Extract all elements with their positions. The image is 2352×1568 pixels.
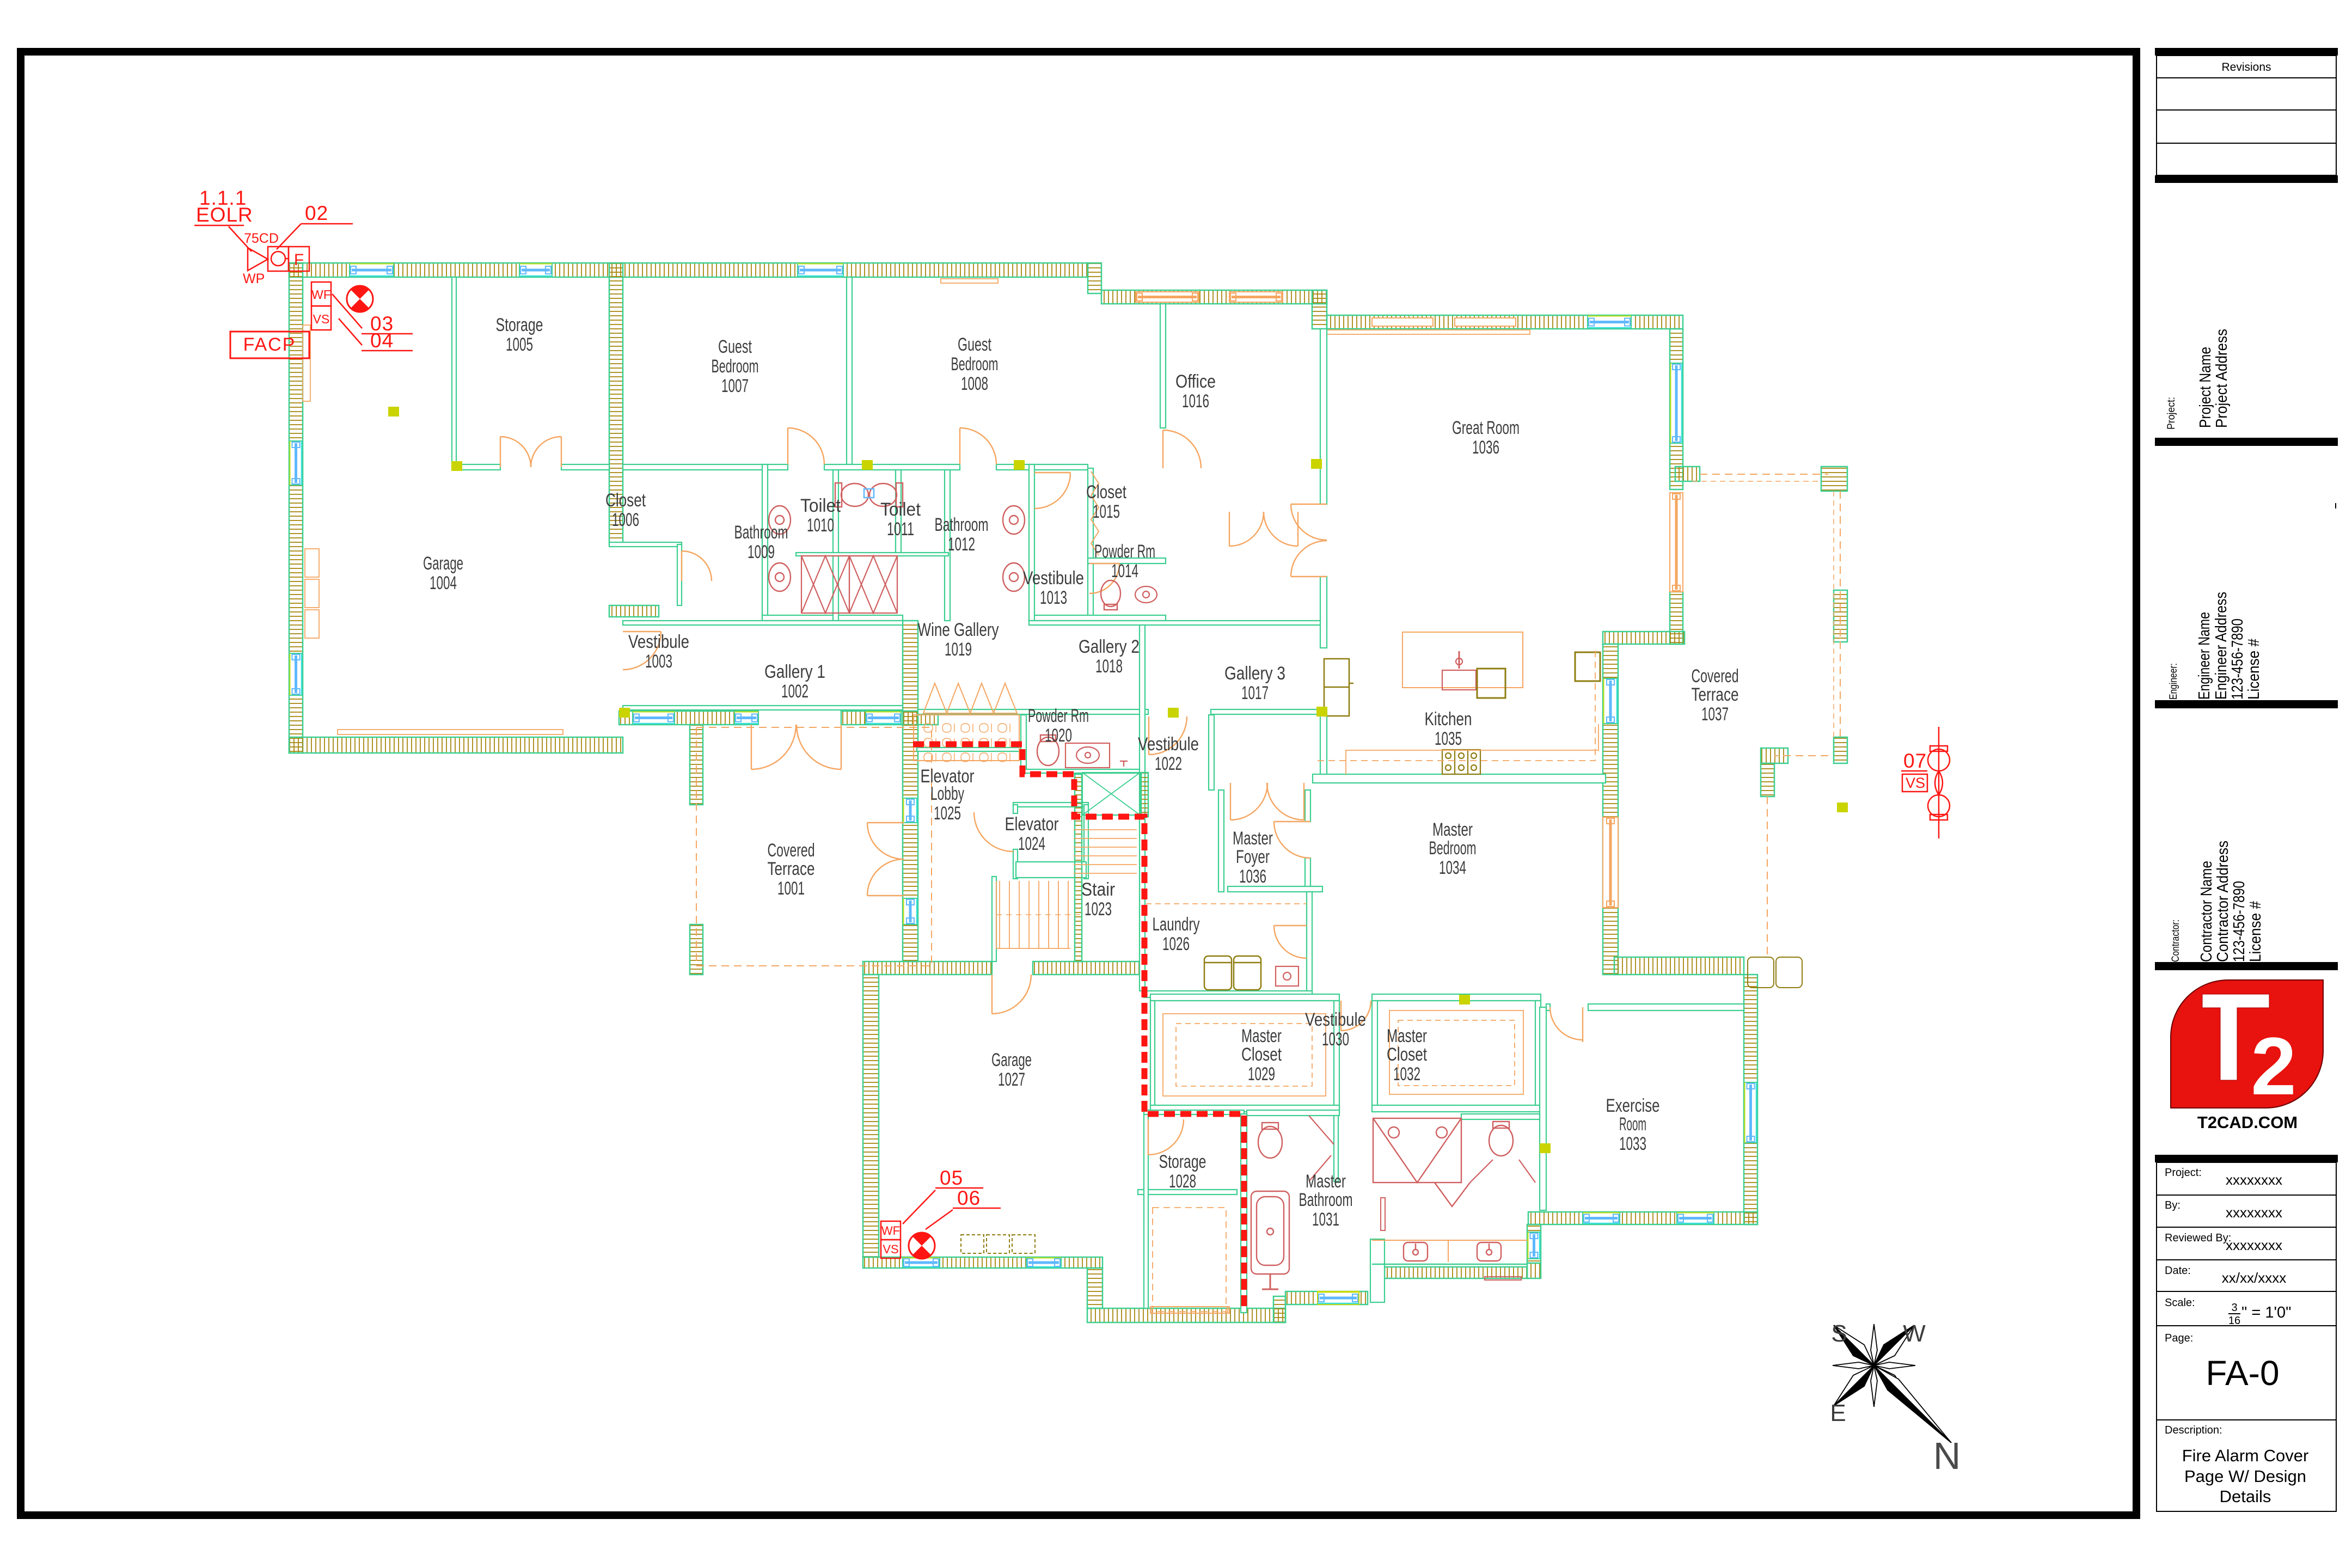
svg-text:1034: 1034 xyxy=(1439,857,1466,878)
svg-text:Stair: Stair xyxy=(1081,879,1115,900)
svg-text:xxxxxxxx: xxxxxxxx xyxy=(2226,1172,2282,1188)
svg-text:" = 1'0": " = 1'0" xyxy=(2241,1304,2291,1321)
svg-text:1019: 1019 xyxy=(945,639,972,660)
svg-text:Vestibule: Vestibule xyxy=(1305,1009,1366,1030)
svg-text:Vestibule: Vestibule xyxy=(1138,734,1199,755)
svg-text:Project:: Project: xyxy=(2165,1167,2202,1179)
svg-text:W: W xyxy=(1903,1320,1926,1347)
svg-text:1035: 1035 xyxy=(1435,728,1462,749)
svg-text:Engineer Address: Engineer Address xyxy=(2213,592,2230,700)
svg-text:1003: 1003 xyxy=(645,651,672,672)
svg-text:Exercise: Exercise xyxy=(1606,1095,1660,1116)
svg-text:Room: Room xyxy=(1619,1114,1646,1135)
svg-text:123-456-7890: 123-456-7890 xyxy=(2231,881,2248,962)
svg-text:75CD: 75CD xyxy=(244,231,279,246)
svg-text:06: 06 xyxy=(957,1187,981,1209)
svg-text:N: N xyxy=(1933,1435,1961,1477)
svg-text:EOLR: EOLR xyxy=(196,204,253,226)
svg-text:Vestibule: Vestibule xyxy=(628,632,689,652)
svg-text:Bathroom: Bathroom xyxy=(1299,1190,1353,1210)
svg-text:1025: 1025 xyxy=(934,803,961,824)
svg-text:Bedroom: Bedroom xyxy=(951,354,999,375)
svg-text:xxxxxxxx: xxxxxxxx xyxy=(2226,1204,2282,1221)
svg-text:Description:: Description: xyxy=(2165,1424,2222,1436)
svg-text:WF: WF xyxy=(311,287,331,302)
svg-text:Gallery 2: Gallery 2 xyxy=(1079,636,1140,657)
svg-text:FA-0: FA-0 xyxy=(2206,1353,2279,1393)
svg-text:By:: By: xyxy=(2165,1199,2180,1211)
svg-text:Storage: Storage xyxy=(496,315,543,335)
svg-text:Contractor Name: Contractor Name xyxy=(2198,861,2215,962)
svg-text:Closet: Closet xyxy=(605,490,646,511)
svg-text:Toilet: Toilet xyxy=(880,499,921,520)
svg-text:1011: 1011 xyxy=(887,519,914,540)
svg-text:E: E xyxy=(1830,1400,1846,1426)
svg-text:05: 05 xyxy=(940,1167,963,1189)
svg-text:Terrace: Terrace xyxy=(1692,684,1739,705)
svg-text:Fire Alarm Cover: Fire Alarm Cover xyxy=(2182,1446,2309,1465)
svg-text:123-456-7890: 123-456-7890 xyxy=(2229,618,2246,700)
svg-text:Project Name: Project Name xyxy=(2197,347,2214,428)
svg-text:1017: 1017 xyxy=(1241,683,1269,703)
svg-text:Terrace: Terrace xyxy=(768,859,815,879)
svg-text:1022: 1022 xyxy=(1155,754,1182,774)
svg-text:Reviewed By:: Reviewed By: xyxy=(2165,1232,2231,1244)
svg-text:xxxxxxxx: xxxxxxxx xyxy=(2226,1237,2282,1253)
svg-text:S: S xyxy=(1831,1320,1847,1347)
svg-text:Gallery 1: Gallery 1 xyxy=(764,661,825,682)
svg-text:Contractor Address: Contractor Address xyxy=(2214,841,2232,962)
svg-text:Master: Master xyxy=(1306,1171,1346,1192)
svg-text:1014: 1014 xyxy=(1111,561,1138,581)
svg-text:Master: Master xyxy=(1432,819,1473,840)
svg-text:Kitchen: Kitchen xyxy=(1425,709,1472,730)
svg-text:Bathroom: Bathroom xyxy=(935,514,989,535)
svg-text:1018: 1018 xyxy=(1095,656,1123,677)
svg-text:Bedroom: Bedroom xyxy=(1429,838,1477,859)
svg-text:3: 3 xyxy=(2231,1302,2237,1314)
svg-text:1005: 1005 xyxy=(506,334,533,355)
svg-text:1029: 1029 xyxy=(1248,1064,1275,1085)
svg-text:T2CAD.COM: T2CAD.COM xyxy=(2197,1113,2298,1132)
svg-text:1030: 1030 xyxy=(1322,1029,1349,1050)
svg-text:1007: 1007 xyxy=(721,376,749,396)
svg-text:Garage: Garage xyxy=(991,1050,1032,1070)
svg-text:FACP: FACP xyxy=(243,334,296,355)
svg-text:Contractor:: Contractor: xyxy=(2170,920,2182,962)
svg-text:Revisions: Revisions xyxy=(2221,61,2271,73)
svg-text:1026: 1026 xyxy=(1162,934,1190,954)
svg-text:1004: 1004 xyxy=(430,573,457,593)
svg-text:Details: Details xyxy=(2220,1487,2271,1506)
svg-text:Bedroom: Bedroom xyxy=(712,356,759,377)
svg-text:1037: 1037 xyxy=(1701,704,1729,725)
svg-text:Project:: Project: xyxy=(2166,397,2177,430)
svg-text:Engineer:: Engineer: xyxy=(2168,663,2179,700)
svg-text:Guest: Guest xyxy=(718,336,752,357)
svg-text:Scale:: Scale: xyxy=(2165,1297,2195,1309)
svg-text:1036: 1036 xyxy=(1239,866,1266,887)
svg-text:Project Address: Project Address xyxy=(2213,329,2231,428)
svg-text:1027: 1027 xyxy=(998,1069,1025,1090)
svg-text:Great Room: Great Room xyxy=(1452,418,1520,438)
svg-text:Master: Master xyxy=(1241,1026,1282,1046)
svg-text:1006: 1006 xyxy=(612,510,639,530)
svg-text:1002: 1002 xyxy=(781,681,808,702)
svg-text:Toilet: Toilet xyxy=(800,495,841,516)
svg-text:1009: 1009 xyxy=(748,542,775,562)
svg-text:1013: 1013 xyxy=(1040,587,1067,608)
svg-text:Date:: Date: xyxy=(2165,1265,2191,1277)
svg-text:VS: VS xyxy=(883,1242,898,1256)
svg-text:07: 07 xyxy=(1903,750,1927,772)
svg-text:WP: WP xyxy=(243,271,265,286)
svg-text:Guest: Guest xyxy=(958,334,991,355)
svg-text:1012: 1012 xyxy=(948,534,975,555)
svg-text:License #: License # xyxy=(2247,901,2264,962)
svg-text:Garage: Garage xyxy=(423,553,463,574)
svg-text:1023: 1023 xyxy=(1085,899,1112,920)
svg-text:Master: Master xyxy=(1387,1026,1427,1046)
svg-text:16: 16 xyxy=(2228,1315,2240,1327)
svg-text:1016: 1016 xyxy=(1182,391,1209,412)
svg-text:Closet: Closet xyxy=(1241,1044,1282,1065)
svg-text:1020: 1020 xyxy=(1045,725,1072,746)
svg-text:1033: 1033 xyxy=(1619,1134,1646,1154)
svg-text:04: 04 xyxy=(370,329,394,352)
svg-text:1010: 1010 xyxy=(807,515,834,536)
svg-text:Bathroom: Bathroom xyxy=(734,522,788,543)
svg-text:Office: Office xyxy=(1175,371,1216,392)
svg-text:1015: 1015 xyxy=(1093,501,1120,522)
svg-text:1024: 1024 xyxy=(1018,834,1045,854)
svg-text:Page W/ Design: Page W/ Design xyxy=(2184,1467,2306,1486)
svg-text:F: F xyxy=(294,251,304,269)
svg-text:2: 2 xyxy=(2251,1020,2296,1112)
svg-text:Covered: Covered xyxy=(768,840,815,861)
svg-text:1008: 1008 xyxy=(961,373,988,394)
svg-text:xx/xx/xxxx: xx/xx/xxxx xyxy=(2222,1270,2286,1286)
svg-text:1028: 1028 xyxy=(1169,1171,1196,1192)
svg-text:Storage: Storage xyxy=(1159,1151,1206,1172)
svg-text:Closet: Closet xyxy=(1387,1044,1427,1065)
svg-text:Page:: Page: xyxy=(2165,1332,2193,1344)
svg-text:License #: License # xyxy=(2245,639,2263,700)
svg-text:Vestibule: Vestibule xyxy=(1023,568,1084,589)
svg-text:Powder Rm: Powder Rm xyxy=(1028,706,1089,726)
svg-text:Foyer: Foyer xyxy=(1236,847,1270,867)
svg-text:Elevator: Elevator xyxy=(1005,814,1059,835)
svg-text:VS: VS xyxy=(313,312,330,326)
svg-text:1036: 1036 xyxy=(1472,437,1499,458)
svg-text:Closet: Closet xyxy=(1086,482,1126,503)
svg-text:WF: WF xyxy=(881,1224,900,1238)
svg-text:Powder Rm: Powder Rm xyxy=(1094,541,1155,562)
svg-text:Lobby: Lobby xyxy=(930,783,964,804)
svg-text:1032: 1032 xyxy=(1393,1064,1420,1085)
svg-text:1001: 1001 xyxy=(777,878,805,899)
svg-text:1031: 1031 xyxy=(1312,1209,1339,1230)
svg-text:Engineer Name: Engineer Name xyxy=(2196,612,2213,700)
svg-text:Wine Gallery: Wine Gallery xyxy=(918,620,999,640)
svg-text:Covered: Covered xyxy=(1692,666,1739,687)
svg-text:Master: Master xyxy=(1233,828,1273,849)
svg-text:Laundry: Laundry xyxy=(1153,914,1200,935)
svg-text:Gallery 3: Gallery 3 xyxy=(1224,663,1285,684)
svg-text:VS: VS xyxy=(1906,775,1925,791)
svg-text:02: 02 xyxy=(305,202,328,224)
